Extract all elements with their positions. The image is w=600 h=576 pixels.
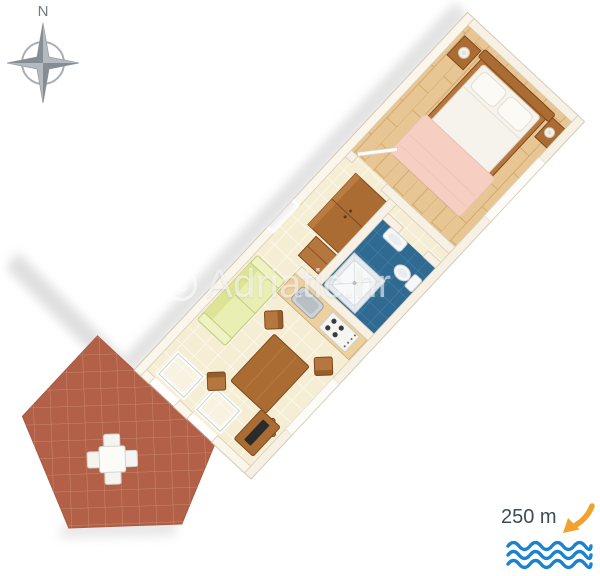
compass-north-label: N [38,3,49,20]
dining-chair [264,311,283,330]
distance-to-sea: 250 m [495,499,597,571]
compass-rose-icon: N [0,0,120,122]
dining-chair [207,372,226,391]
sea-waves-icon [505,541,595,571]
floor-plan-page: N Adriatic.hr 250 m [0,0,600,576]
distance-label: 250 m [501,506,557,529]
dining-chair [314,357,333,376]
sea-direction-arrow-icon [557,501,595,539]
